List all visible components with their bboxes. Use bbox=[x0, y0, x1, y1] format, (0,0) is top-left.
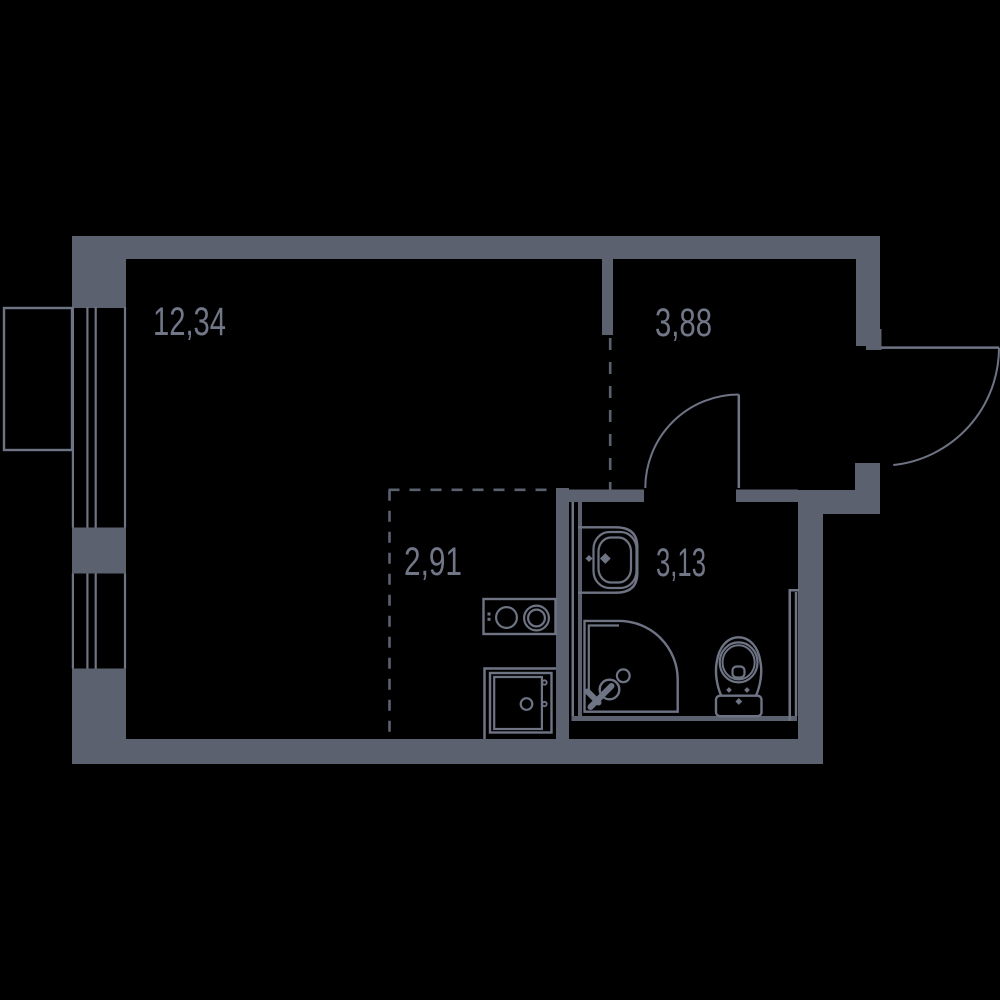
svg-text:2,91: 2,91 bbox=[404, 540, 462, 584]
svg-text:3,13: 3,13 bbox=[656, 541, 706, 585]
svg-text:12,34: 12,34 bbox=[153, 300, 226, 344]
svg-text:3,88: 3,88 bbox=[655, 301, 712, 345]
